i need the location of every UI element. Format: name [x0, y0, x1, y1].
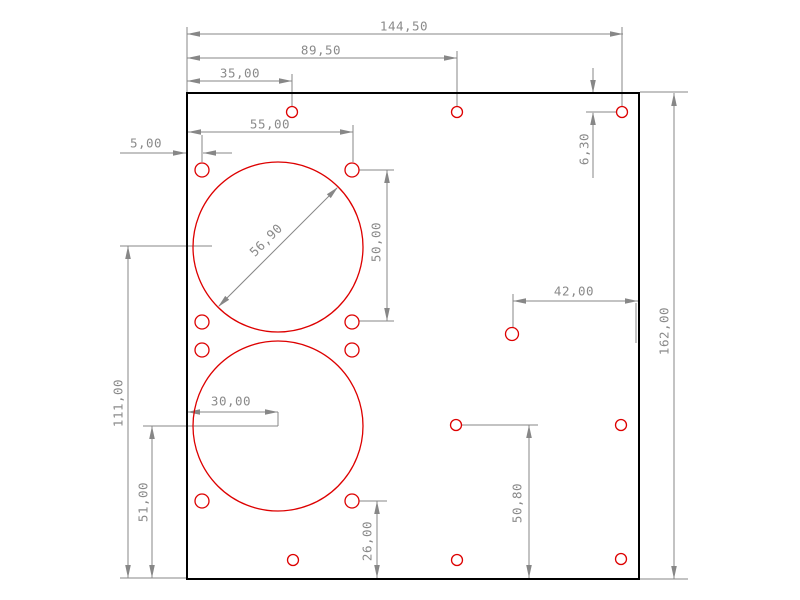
dimension-30-00: 30,00	[187, 393, 278, 426]
dimension-arrow	[374, 565, 380, 578]
cad-viewport: 144,5089,5035,0055,005,006,3050,0042,001…	[0, 0, 800, 600]
mounting-hole	[506, 328, 519, 341]
dimension-arrow	[671, 566, 677, 579]
dimension-arrow	[374, 501, 380, 514]
dimension-label: 6,30	[576, 133, 591, 165]
dimension-label: 55,00	[250, 116, 290, 131]
mounting-hole	[451, 420, 462, 431]
mounting-hole	[616, 420, 627, 431]
dimension-5-00: 5,00	[120, 135, 232, 162]
dimension-label: 162,00	[656, 307, 671, 355]
dimension-56-90-diameter: 56,90	[218, 187, 338, 307]
dimension-arrow	[149, 565, 155, 578]
dimension-arrow	[149, 426, 155, 439]
dimension-label: 144,50	[380, 18, 428, 33]
dimension-arrow	[187, 55, 200, 61]
dimension-label: 51,00	[135, 482, 150, 522]
dimension-arrow	[173, 150, 186, 156]
dimension-arrow	[265, 409, 278, 415]
dimension-label: 50,80	[509, 483, 524, 523]
dimension-arrow	[526, 425, 532, 438]
mounting-hole	[345, 163, 359, 177]
dimension-arrow	[340, 129, 353, 135]
dimension-arrow	[384, 170, 390, 183]
dimension-label: 56,90	[246, 220, 285, 259]
dimension-arrow	[610, 31, 623, 37]
dimension-arrow	[187, 31, 200, 37]
dimension-arrow	[590, 112, 596, 125]
mounting-hole	[617, 107, 628, 118]
dimension-line	[219, 188, 337, 306]
dimension-arrow	[187, 78, 200, 84]
dimension-26-00: 26,00	[359, 501, 387, 578]
dimension-50-80: 50,80	[462, 425, 538, 578]
mounting-hole	[452, 107, 463, 118]
mounting-hole	[452, 555, 463, 566]
dimension-arrow	[671, 93, 677, 106]
dimension-label: 5,00	[130, 135, 162, 150]
mounting-hole	[195, 343, 209, 357]
dimension-arrow	[279, 78, 292, 84]
mounting-hole	[195, 494, 209, 508]
mounting-hole	[195, 163, 209, 177]
mounting-hole	[287, 107, 298, 118]
dimension-arrow	[203, 150, 216, 156]
dimension-51-00: 51,00	[135, 426, 278, 578]
dimension-35-00: 35,00	[187, 65, 292, 106]
dimension-55-00: 55,00	[188, 116, 353, 162]
mounting-hole	[616, 554, 627, 565]
dimension-50-00: 50,00	[359, 170, 394, 321]
mounting-hole	[345, 343, 359, 357]
dimension-arrow	[444, 55, 457, 61]
dimension-label: 89,50	[301, 42, 341, 57]
dimension-6-30: 6,30	[576, 68, 617, 178]
dimension-label: 26,00	[359, 521, 374, 561]
dimension-label: 42,00	[554, 283, 594, 298]
dimension-arrow	[526, 565, 532, 578]
dimension-label: 111,00	[110, 379, 125, 427]
technical-drawing: 144,5089,5035,0055,005,006,3050,0042,001…	[0, 0, 800, 600]
dimension-42-00: 42,00	[513, 283, 638, 343]
dimension-arrow	[625, 298, 638, 304]
dimension-label: 30,00	[211, 393, 251, 408]
dimension-label: 35,00	[220, 65, 260, 80]
mounting-hole	[288, 555, 299, 566]
mounting-hole	[345, 494, 359, 508]
dimension-arrow	[513, 298, 526, 304]
mounting-hole	[345, 315, 359, 329]
dimension-label: 50,00	[368, 222, 383, 262]
dimension-arrow	[384, 308, 390, 321]
dimension-162-00: 162,00	[640, 92, 688, 579]
dimension-arrow	[125, 565, 131, 578]
dimension-arrow	[188, 129, 201, 135]
dimension-arrow	[125, 246, 131, 259]
dimension-arrow	[590, 80, 596, 93]
mounting-hole	[195, 315, 209, 329]
